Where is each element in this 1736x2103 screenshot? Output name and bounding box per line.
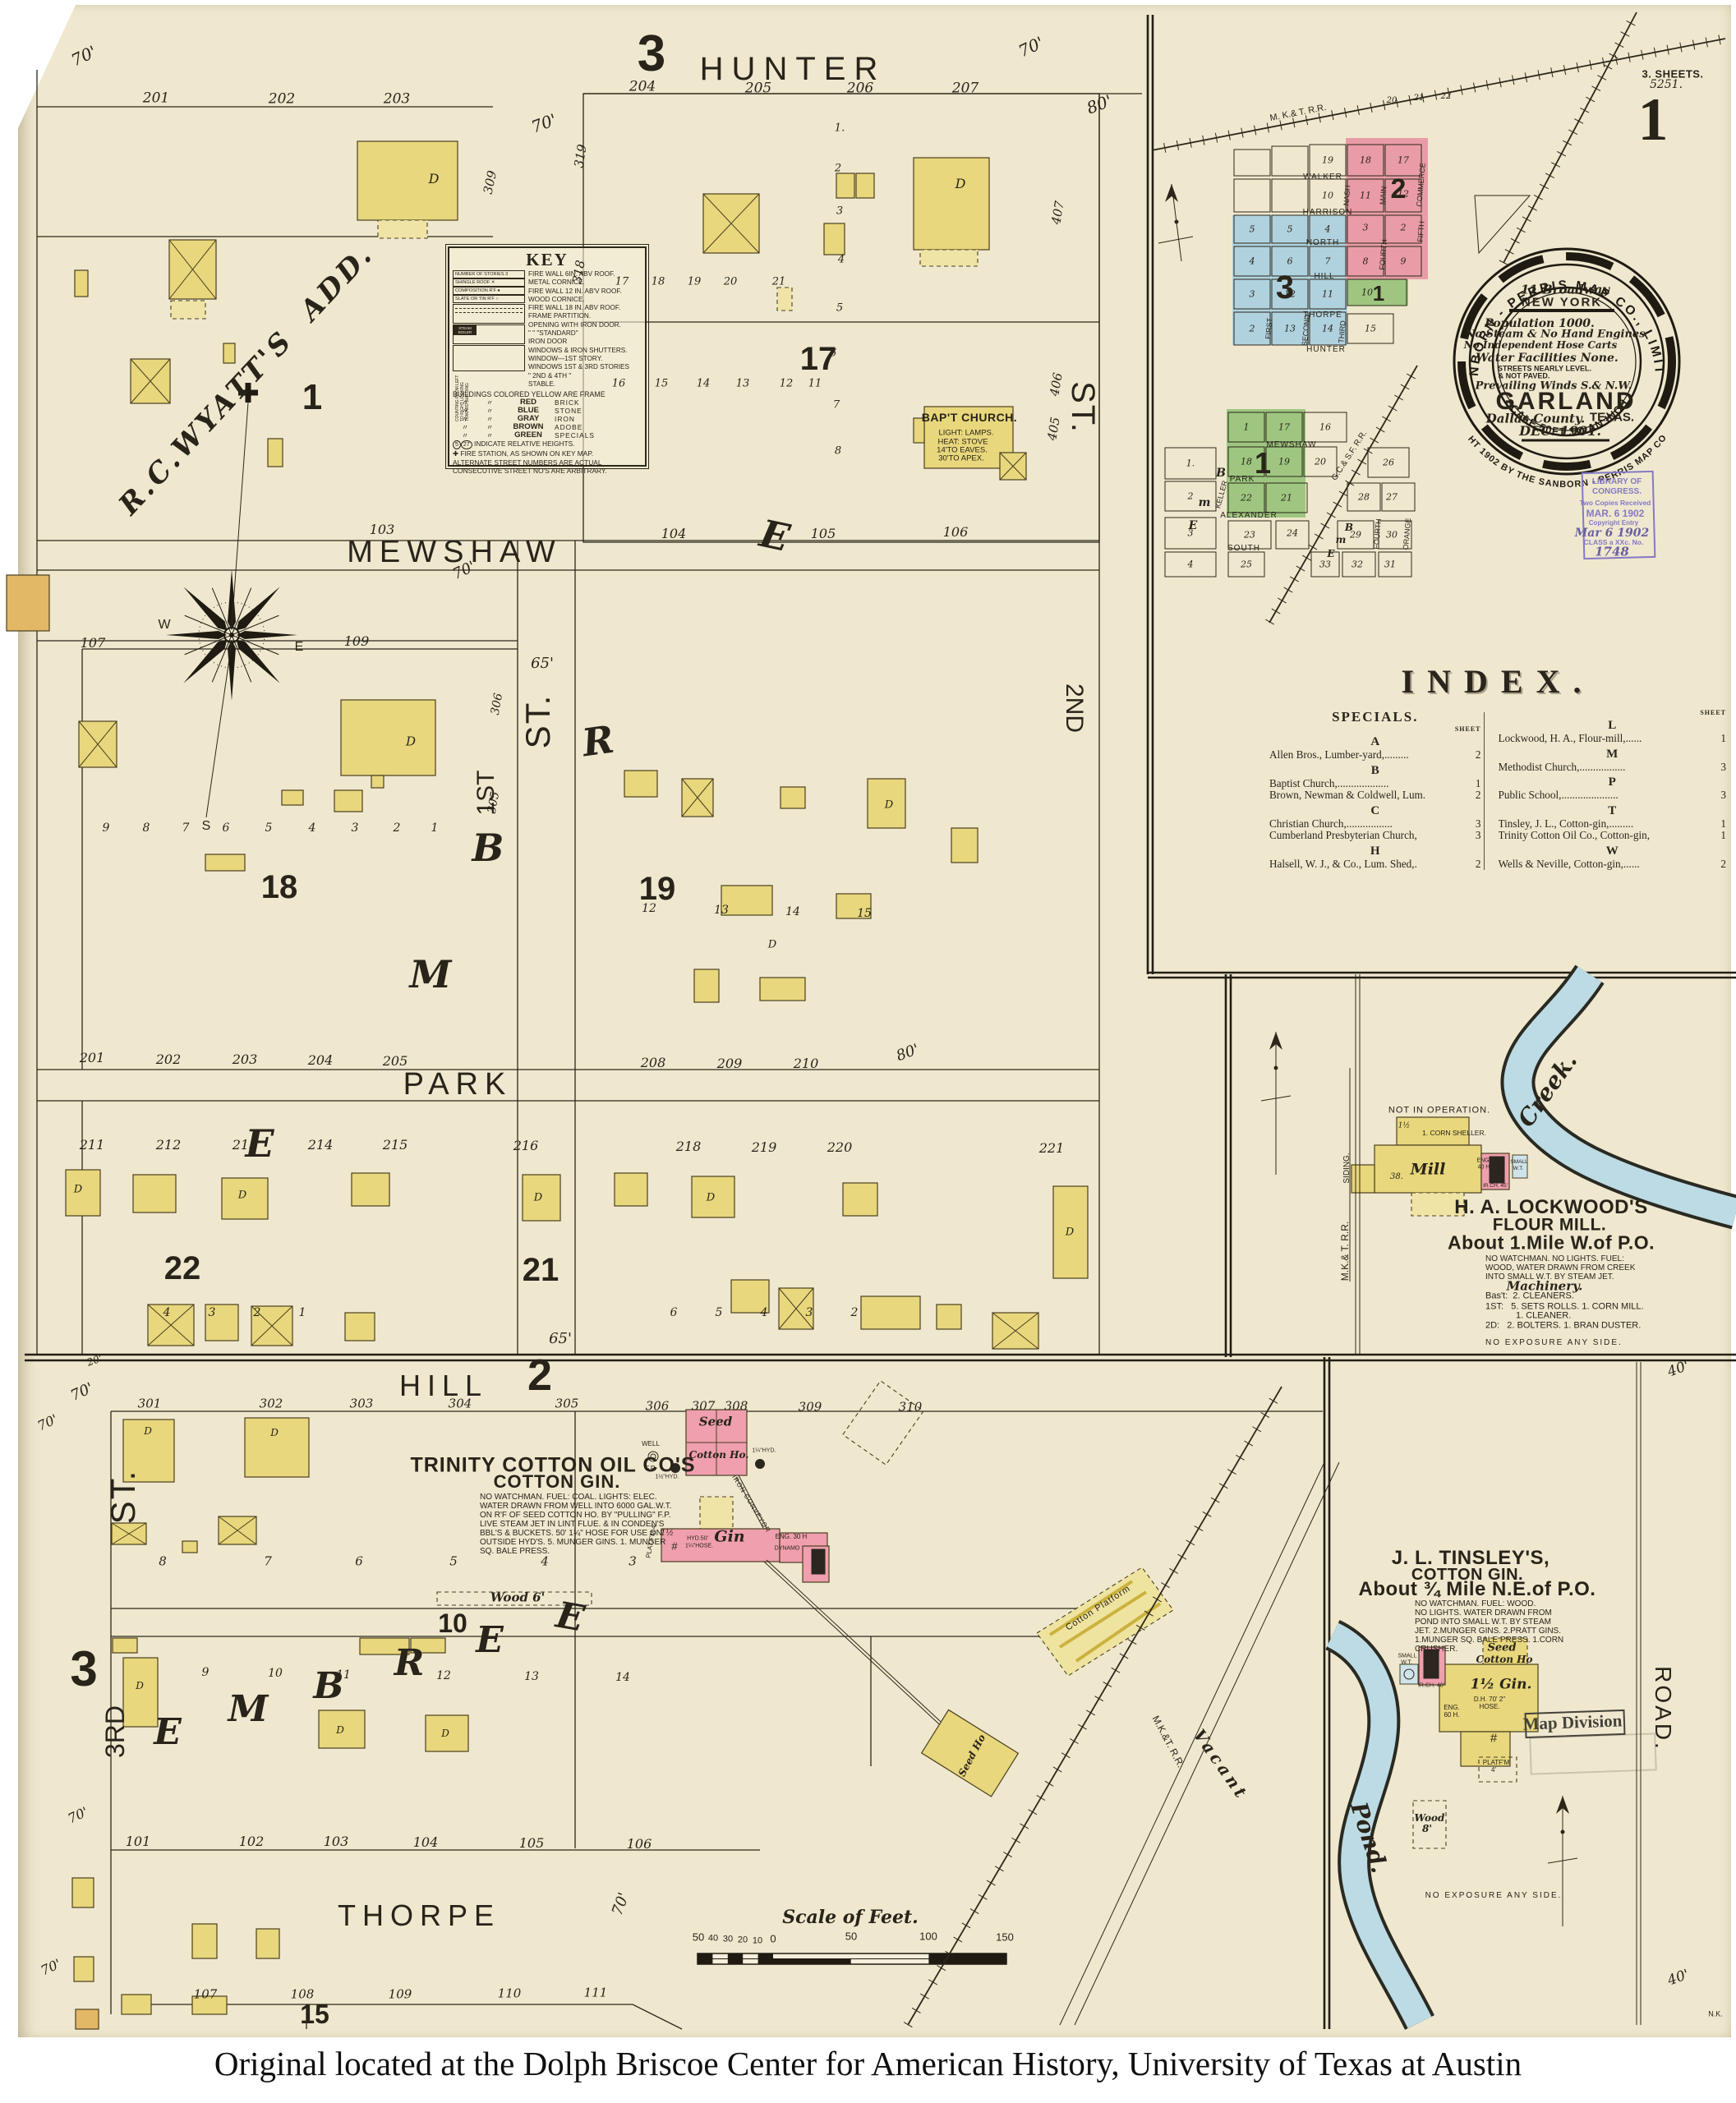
km-sheet1b: 1 <box>1255 449 1271 478</box>
num-309b: 309 <box>799 1401 822 1414</box>
corner-sheet1: 1 <box>1638 90 1669 150</box>
baptist-title: BAP'T CHURCH. <box>922 412 1017 423</box>
lockwood-sheller: 1. CORN SHELLER. <box>1422 1130 1486 1137</box>
key-line: " " "STANDARD" <box>528 329 642 338</box>
key-color-rows: 〃〃REDBRICK〃〃BLUESTONE〃〃GRAYIRON〃〃BROWNAD… <box>453 398 642 439</box>
index-letter: T <box>1499 804 1726 818</box>
key-fire-line: ✚ FIRE STATION, AS SHOWN ON KEY MAP. <box>453 449 642 458</box>
km-n28: 28 <box>1358 493 1370 502</box>
tinsley-wood2: 8' <box>1422 1824 1432 1834</box>
lot19-12: 12 <box>642 903 656 914</box>
lockwood-notop: NOT IN OPERATION. <box>1388 1107 1490 1116</box>
tinsley-note1: NO WATCHMAN. FUEL: WOOD. <box>1415 1600 1536 1608</box>
lockwood-1stb: 1. CLEANER. <box>1516 1312 1571 1321</box>
lot18-8: 8 <box>143 822 150 834</box>
bldg-d-12: D <box>270 1428 279 1438</box>
key-heights-line: 527 INDICATE RELATIVE HEIGHTS. <box>453 439 642 449</box>
street-hill: HILL <box>399 1371 488 1401</box>
block1-number: 1 <box>302 380 322 416</box>
num-park-212: 212 <box>156 1139 182 1152</box>
num-302: 302 <box>260 1398 283 1410</box>
index-entry: Lockwood, H. A., Flour-mill,......1 <box>1499 733 1726 745</box>
tinsley-note3: POND INTO SMALL W.T. BY STEAM <box>1415 1618 1551 1627</box>
num-park-218: 218 <box>676 1140 702 1153</box>
stamp-state: TEXAS. <box>1590 412 1634 424</box>
lothill-6: 6 <box>355 1556 363 1568</box>
index-entry-name: Allen Bros., Lumber-yard,......... <box>1269 749 1467 762</box>
tinsley-wt1: SMALL <box>1398 1654 1417 1659</box>
loc-line5: Copyright Entry <box>1589 520 1638 527</box>
index-entry-name: Baptist Church,................... <box>1269 778 1467 790</box>
key-counting-note: COUNTING FROM LEFT TO RIGHT LOOKING TOWA… <box>455 372 470 421</box>
loc-line1: LIBRARY OF <box>1592 478 1642 486</box>
key-height-badge-27: 27 <box>461 440 472 449</box>
km-n3b: 3 <box>1250 290 1255 299</box>
num-308: 308 <box>725 1401 748 1413</box>
lot18-7: 7 <box>182 822 190 834</box>
km-n32: 32 <box>1352 560 1363 569</box>
km-n2a: 2 <box>1401 223 1407 232</box>
index-letter: W <box>1499 844 1726 858</box>
tinsley-irch: IR.CH. 40' <box>1418 1683 1444 1689</box>
key-color-row: 〃〃GRAYIRON <box>453 415 642 423</box>
street-mewshaw: MEWSHAW <box>347 536 561 568</box>
num-303: 303 <box>350 1398 374 1410</box>
num-park-209: 209 <box>717 1057 743 1070</box>
block21-number: 21 <box>523 1254 559 1286</box>
compass-w: W <box>158 619 170 632</box>
lockwood-siding: SIDING. <box>1343 1153 1352 1183</box>
km-n8: 8 <box>1363 257 1369 266</box>
bldg-d-7: D <box>238 1190 246 1201</box>
lot22-3: 3 <box>209 1307 216 1318</box>
km-harrison: HARRISON <box>1303 209 1353 217</box>
index-entry: Trinity Cotton Oil Co., Cotton-gin,1 <box>1499 830 1726 842</box>
lothill-5: 5 <box>449 1556 458 1568</box>
km-n12: 12 <box>1398 190 1409 199</box>
num-201: 201 <box>143 92 169 106</box>
km-park: PARK <box>1230 476 1255 484</box>
loc-line8: 1748 <box>1595 546 1629 559</box>
km-emb-b2: B <box>1345 522 1353 532</box>
lockwood-title3: About 1.Mile W.of P.O. <box>1448 1234 1655 1253</box>
index-sheet-header-left: SHEET <box>1269 725 1481 733</box>
lot17-4: 4 <box>838 255 845 265</box>
ditto-mark: 〃 <box>453 431 477 439</box>
km-n11b: 11 <box>1322 290 1333 299</box>
km-n5a: 5 <box>1250 225 1255 234</box>
num-park-210: 210 <box>794 1057 819 1070</box>
block3b-number: 3 <box>70 1645 97 1694</box>
ditto-mark: 〃 <box>453 423 477 431</box>
trinity-dynamo: DYNAMO <box>775 1546 800 1552</box>
km-n26: 26 <box>1383 458 1394 467</box>
index-sheet-header-right: SHEET <box>1499 709 1726 716</box>
km-n25: 25 <box>1241 560 1252 569</box>
ditto-mark: 〃 <box>477 423 502 431</box>
lot22-4: 4 <box>163 1307 171 1318</box>
embree-m2: M <box>228 1691 269 1728</box>
km-n31: 31 <box>1384 560 1396 569</box>
trinity-note5: BBL'S & BUCKETS. 50' 1¼" HOSE FOR USE ON <box>480 1530 662 1538</box>
index-entry-sheet: 3 <box>1467 818 1481 831</box>
index-letter: L <box>1499 719 1726 733</box>
scale-0: 0 <box>770 1934 776 1944</box>
key-line: WINDOW—1ST STORY. <box>528 355 642 363</box>
num-104: 104 <box>661 527 687 541</box>
street-park: PARK <box>403 1069 513 1100</box>
num-107b: 107 <box>194 1989 218 2001</box>
index-letter: H <box>1269 844 1481 858</box>
trinity-hyd2: 1¼"HYD. <box>753 1448 776 1454</box>
key-color-row: 〃〃BROWNADOBE <box>453 423 642 431</box>
lot17-1: 1. <box>835 123 845 134</box>
key-line: FRAME PARTITION. <box>528 312 642 320</box>
lotrow-b-14: 14 <box>697 379 711 389</box>
ditto-mark: 〃 <box>477 398 502 407</box>
baptist-apex: 30'TO APEX. <box>938 454 984 462</box>
index-letter: A <box>1269 735 1481 749</box>
lot3rd-11: 11 <box>336 1669 351 1681</box>
index-entry-sheet: 2 <box>1467 789 1481 802</box>
index-entry: Wells & Neville, Cotton-gin,......2 <box>1499 858 1726 871</box>
key-alt2: CONSECUTIVE STREET NO'S ARE ARBITRARY. <box>453 467 642 476</box>
key-line: WINDOWS 1ST & 3RD STORIES <box>528 363 642 371</box>
stamp-engines: No Steam & No Hand Engines <box>1466 329 1646 340</box>
index-entry-name: Cumberland Presbyterian Church, <box>1269 830 1467 842</box>
compass-s: S <box>202 820 211 833</box>
lot17-7: 7 <box>833 400 840 411</box>
num-207: 207 <box>952 82 979 96</box>
index-specials-header: SPECIALS. <box>1269 709 1481 725</box>
stamp-streets2: & NOT PAVED. <box>1499 373 1550 380</box>
index-entry: Christian Church,.................3 <box>1269 818 1481 831</box>
bldg-d-11: D <box>144 1426 152 1436</box>
key-line: FIRE WALL 12 IN. AB'V ROOF. <box>528 288 642 296</box>
num-205: 205 <box>745 82 771 96</box>
scale-title: Scale of Feet. <box>782 1908 919 1926</box>
num-106: 106 <box>943 526 969 539</box>
km-alexander: ALEXANDER <box>1220 512 1278 520</box>
index-title: INDEX. <box>1269 662 1726 701</box>
key-color-material: STONE <box>555 407 612 415</box>
num-park-205: 205 <box>383 1055 408 1068</box>
km-n9: 9 <box>1401 257 1407 266</box>
tinsley-noexposure: NO EXPOSURE ANY SIDE. <box>1425 1892 1563 1900</box>
index-entry: Allen Bros., Lumber-yard,.........2 <box>1269 749 1481 762</box>
index-letter: P <box>1499 775 1726 789</box>
lot21-2: 2 <box>851 1307 859 1318</box>
stamp-hose: No Independent Hose Carts <box>1464 340 1618 350</box>
lot3rd-10: 10 <box>268 1668 283 1679</box>
lothill-7: 7 <box>264 1556 272 1568</box>
km-north: NORTH <box>1306 239 1339 247</box>
lockwood-title1: H. A. LOCKWOOD'S <box>1454 1198 1647 1217</box>
tinsley-wt2: W.T. <box>1401 1660 1412 1666</box>
num-park-204: 204 <box>308 1054 334 1067</box>
map-division-label: Map Division <box>1522 1712 1622 1733</box>
st-label-a: ST. <box>521 694 555 749</box>
tinsley-note2: NO LIGHTS. WATER DRAWN FROM <box>1415 1609 1552 1618</box>
index-entry-sheet: 1 <box>1711 818 1726 831</box>
bldg-d-13: D <box>136 1681 144 1691</box>
bldg-d-4: D <box>885 800 893 811</box>
dim-65-b: 65' <box>549 1332 572 1346</box>
num-park-216: 216 <box>513 1139 539 1153</box>
num-109b: 109 <box>389 1989 412 2001</box>
km-n4a: 4 <box>1325 225 1331 234</box>
num-306: 306 <box>646 1401 670 1413</box>
km-n11: 11 <box>1360 191 1371 200</box>
lot21-3: 3 <box>806 1307 813 1318</box>
key-boiler-sample: STEAM BOILER <box>453 324 525 344</box>
num-park-211: 211 <box>80 1139 105 1152</box>
num-105: 105 <box>811 527 836 541</box>
fire-station-cross-icon: ✚ <box>453 449 458 458</box>
stamp-newyork: NEW YORK <box>1522 297 1602 309</box>
km-n17g: 17 <box>1278 423 1290 432</box>
km-n10: 10 <box>1322 191 1333 200</box>
index-letter: C <box>1269 804 1481 818</box>
lotrow-b-16: 16 <box>612 379 626 389</box>
wood6-label: Wood 6' <box>490 1592 545 1604</box>
compass-e: E <box>295 641 304 654</box>
trinity-note3: ON R'F OF SEED COTTON HO. BY "PULLING" F… <box>480 1512 670 1520</box>
km-n33: 33 <box>1319 560 1331 569</box>
km-n22t: 22 <box>1441 93 1452 101</box>
baptist-light: LIGHT: LAMPS. <box>938 429 993 437</box>
index-entry-name: Trinity Cotton Oil Co., Cotton-gin, <box>1499 830 1711 842</box>
map-paper <box>18 5 1731 2037</box>
key-height-badge-5: 5 <box>453 440 461 449</box>
num-park-213: 213 <box>233 1139 258 1152</box>
lotrow-a-20: 20 <box>724 277 738 288</box>
bldg-d-15: D <box>441 1728 449 1738</box>
num-park-215: 215 <box>383 1139 408 1152</box>
bldg-d-3: D <box>406 736 416 748</box>
num-304: 304 <box>449 1398 472 1410</box>
km-south: SOUTH <box>1227 545 1260 553</box>
km-n21t: 21 <box>1414 94 1425 103</box>
st-label-b: ST. <box>106 1470 140 1525</box>
tinsley-hash: # <box>1490 1733 1497 1745</box>
ditto-mark: 〃 <box>477 415 502 423</box>
key-symbol-strip: COMPOSITION R'F ● <box>453 287 525 295</box>
index-letter: M <box>1499 748 1726 762</box>
index-entry-name: Halsell, W. J., & Co., Lum. Shed,. <box>1269 858 1467 871</box>
num-park-219: 219 <box>752 1141 777 1154</box>
index-entry-name: Tinsley, J. L., Cotton-gin,......... <box>1499 818 1711 831</box>
key-alt1: ALTERNATE STREET NUMBERS ARE ACTUAL <box>453 458 642 467</box>
lot17-2: 2 <box>835 163 841 174</box>
scale-50b: 50 <box>845 1931 857 1942</box>
index-entry-sheet: 2 <box>1467 858 1481 871</box>
trinity-note2: WATER DRAWN FROM WELL INTO 6000 GAL.W.T. <box>480 1502 672 1511</box>
embree-e3: E <box>554 1597 587 1637</box>
km-n18g: 18 <box>1241 458 1252 467</box>
num-103b: 103 <box>324 1835 349 1848</box>
km-n6: 6 <box>1287 257 1293 266</box>
lot3rd-13: 13 <box>524 1671 539 1682</box>
km-n4c: 4 <box>1188 560 1194 569</box>
tinsley-plat2: 4' <box>1491 1767 1496 1774</box>
index-entry-sheet: 1 <box>1711 830 1726 842</box>
tinsley-title3: About ¾ Mile N.E.of P.O. <box>1359 1580 1596 1599</box>
trinity-eng: ENG. 30 H <box>776 1534 808 1540</box>
index-entry-name: Wells & Neville, Cotton-gin,...... <box>1499 858 1711 871</box>
km-n14: 14 <box>1322 324 1333 334</box>
index-entry-sheet: 3 <box>1711 789 1726 802</box>
block22-number: 22 <box>164 1252 201 1285</box>
index-entry: Cumberland Presbyterian Church,3 <box>1269 830 1481 842</box>
key-line: WINDOWS & IRON SHUTTERS. <box>528 347 642 355</box>
key-color-material: ADOBE <box>555 423 612 431</box>
lot21-4: 4 <box>761 1307 768 1318</box>
km-n13: 13 <box>1284 324 1296 334</box>
km-n18: 18 <box>1360 156 1371 165</box>
num-103: 103 <box>370 523 395 536</box>
key-line: IRON DOOR <box>528 338 642 346</box>
km-walker: WALKER <box>1303 173 1342 182</box>
lot21-6: 6 <box>670 1307 678 1318</box>
km-n19g: 19 <box>1278 458 1290 467</box>
km-emb-e2: E <box>1327 549 1334 559</box>
num-park-221: 221 <box>1039 1142 1065 1155</box>
block2-number: 2 <box>527 1353 552 1397</box>
num-park-208: 208 <box>641 1056 666 1070</box>
lot19-13: 13 <box>714 904 729 916</box>
key-color-material: BRICK <box>555 398 612 407</box>
num-102: 102 <box>239 1835 265 1848</box>
block18-number: 18 <box>261 871 298 904</box>
index-entry: Public School,.....................3 <box>1499 789 1726 802</box>
km-sheet1a: 1 <box>1373 283 1384 304</box>
km-n23: 23 <box>1244 531 1255 540</box>
num-park-201: 201 <box>80 1051 105 1065</box>
loc-line3: Two Copies Received <box>1580 499 1651 507</box>
num-202: 202 <box>269 93 295 107</box>
km-n1g: 1 <box>1244 423 1250 432</box>
bldg-d-2: D <box>955 177 966 191</box>
lockwood-half: 1½ <box>1398 1123 1410 1130</box>
index-entry: Brown, Newman & Coldwell, Lum.2 <box>1269 789 1481 802</box>
index-entry-sheet: 2 <box>1711 858 1726 871</box>
key-window-sample <box>453 345 525 371</box>
loc-line4: MAR. 6 1902 <box>1586 508 1645 518</box>
block19-number: 19 <box>639 872 676 905</box>
km-emb-e1: E <box>1189 520 1198 532</box>
bldg-d-14: D <box>336 1725 344 1735</box>
km-n19: 19 <box>1322 156 1333 165</box>
km-mewshaw: MEWSHAW <box>1266 441 1316 449</box>
km-n27: 27 <box>1386 493 1398 502</box>
km-emb-m2: m <box>1336 535 1347 545</box>
lot18-3: 3 <box>352 822 359 834</box>
trinity-gin: Gin <box>714 1530 744 1545</box>
block15-number: 15 <box>300 2001 329 2027</box>
tinsley-gin: 1½ Gin. <box>1471 1678 1532 1692</box>
num-park-214: 214 <box>308 1139 334 1152</box>
bldg-d-8: D <box>534 1193 542 1203</box>
index-letter: B <box>1269 764 1481 778</box>
sanborn-map-page: .ln{stroke:#2c2719;stroke-width:1.3;fill… <box>0 0 1736 2103</box>
km-n10g: 10 <box>1361 288 1373 297</box>
lockwood-40h: 40 H <box>1478 1165 1490 1171</box>
bldg-d-5: D <box>768 940 776 950</box>
key-title: KEY <box>453 250 642 270</box>
key-symbol-strip: SHINGLE ROOF ✕ <box>453 278 525 287</box>
num-305: 305 <box>555 1398 579 1410</box>
lot18-2: 2 <box>394 822 401 834</box>
bldg-d-9: D <box>707 1193 715 1203</box>
key-colored-title: BUILDINGS COLORED YELLOW ARE FRAME <box>453 390 642 398</box>
index-entry: Halsell, W. J., & Co., Lum. Shed,.2 <box>1269 858 1481 871</box>
tinsley-road: ROAD. <box>1651 1666 1674 1751</box>
num-105b: 105 <box>519 1837 545 1850</box>
lot22-2: 2 <box>254 1307 261 1318</box>
trinity-hyd1: 1½"HYD. <box>656 1475 679 1480</box>
embree-e5: E <box>476 1622 504 1659</box>
num-310: 310 <box>899 1401 923 1414</box>
lockwood-note1: NO WATCHMAN. NO LIGHTS. FUEL: <box>1485 1255 1624 1263</box>
lot18-9: 9 <box>103 822 110 834</box>
trinity-seed: Seed <box>699 1416 732 1429</box>
km-n12b: 12 <box>1284 290 1296 299</box>
archive-caption: Original located at the Dolph Briscoe Ce… <box>0 2044 1736 2083</box>
bldg-d-6: D <box>74 1185 82 1195</box>
index-entry-name: Public School,..................... <box>1499 789 1711 802</box>
km-n24: 24 <box>1287 529 1298 538</box>
dim-65-a: 65' <box>531 656 554 671</box>
index-entry-sheet: 3 <box>1711 762 1726 774</box>
key-color-name: GREEN <box>502 431 555 439</box>
km-n20: 20 <box>1315 458 1326 467</box>
lot22-1: 1 <box>299 1307 306 1318</box>
num-104b: 104 <box>413 1836 439 1849</box>
lockwood-2d: 2D: 2. BOLTERS. 1. BRAN DUSTER. <box>1485 1322 1641 1331</box>
km-n2c: 2 <box>1188 492 1194 501</box>
index-panel: INDEX. SPECIALS. SHEET AAllen Bros., Lum… <box>1269 662 1726 870</box>
block3-number: 3 <box>638 29 665 80</box>
km-emb-m1: m <box>1199 497 1211 508</box>
bldg-d-1: D <box>429 173 440 186</box>
lockwood-note2: WOOD, WATER DRAWN FROM CREEK <box>1485 1264 1635 1272</box>
scale-40: 40 <box>708 1935 718 1944</box>
km-emb-b1: B <box>1216 467 1226 479</box>
lot19-14: 14 <box>785 906 800 918</box>
lot3rd-14: 14 <box>615 1672 630 1683</box>
stamp-water: Water Facilities None. <box>1476 352 1618 364</box>
km-n17: 17 <box>1398 156 1409 165</box>
tinsley-plat1: PLATF'M <box>1483 1760 1510 1766</box>
km-n2b: 2 <box>1250 324 1255 334</box>
st-2nd-b: 2ND <box>1061 683 1086 733</box>
lockwood-wt2: W.T. <box>1513 1167 1524 1172</box>
lockwood-eng: ENG. <box>1476 1158 1490 1164</box>
block10-number: 10 <box>438 1610 467 1636</box>
paper-tear-corner <box>18 5 76 128</box>
num-307: 307 <box>692 1401 716 1413</box>
lotrow-b-11: 11 <box>808 379 822 389</box>
bldg-d-10: D <box>1066 1227 1074 1238</box>
scale-100: 100 <box>919 1931 937 1942</box>
embree-b1: B <box>472 829 504 867</box>
num-park-203: 203 <box>233 1053 258 1066</box>
trinity-note1: NO WATCHMAN. FUEL: COAL. LIGHTS: ELEC. <box>480 1493 657 1502</box>
lockwood-title2: FLOUR MILL. <box>1493 1217 1606 1234</box>
trinity-note7: SQ. BALE PRESS. <box>480 1548 550 1556</box>
map-division-stamp-ghost <box>1529 1733 1657 1774</box>
